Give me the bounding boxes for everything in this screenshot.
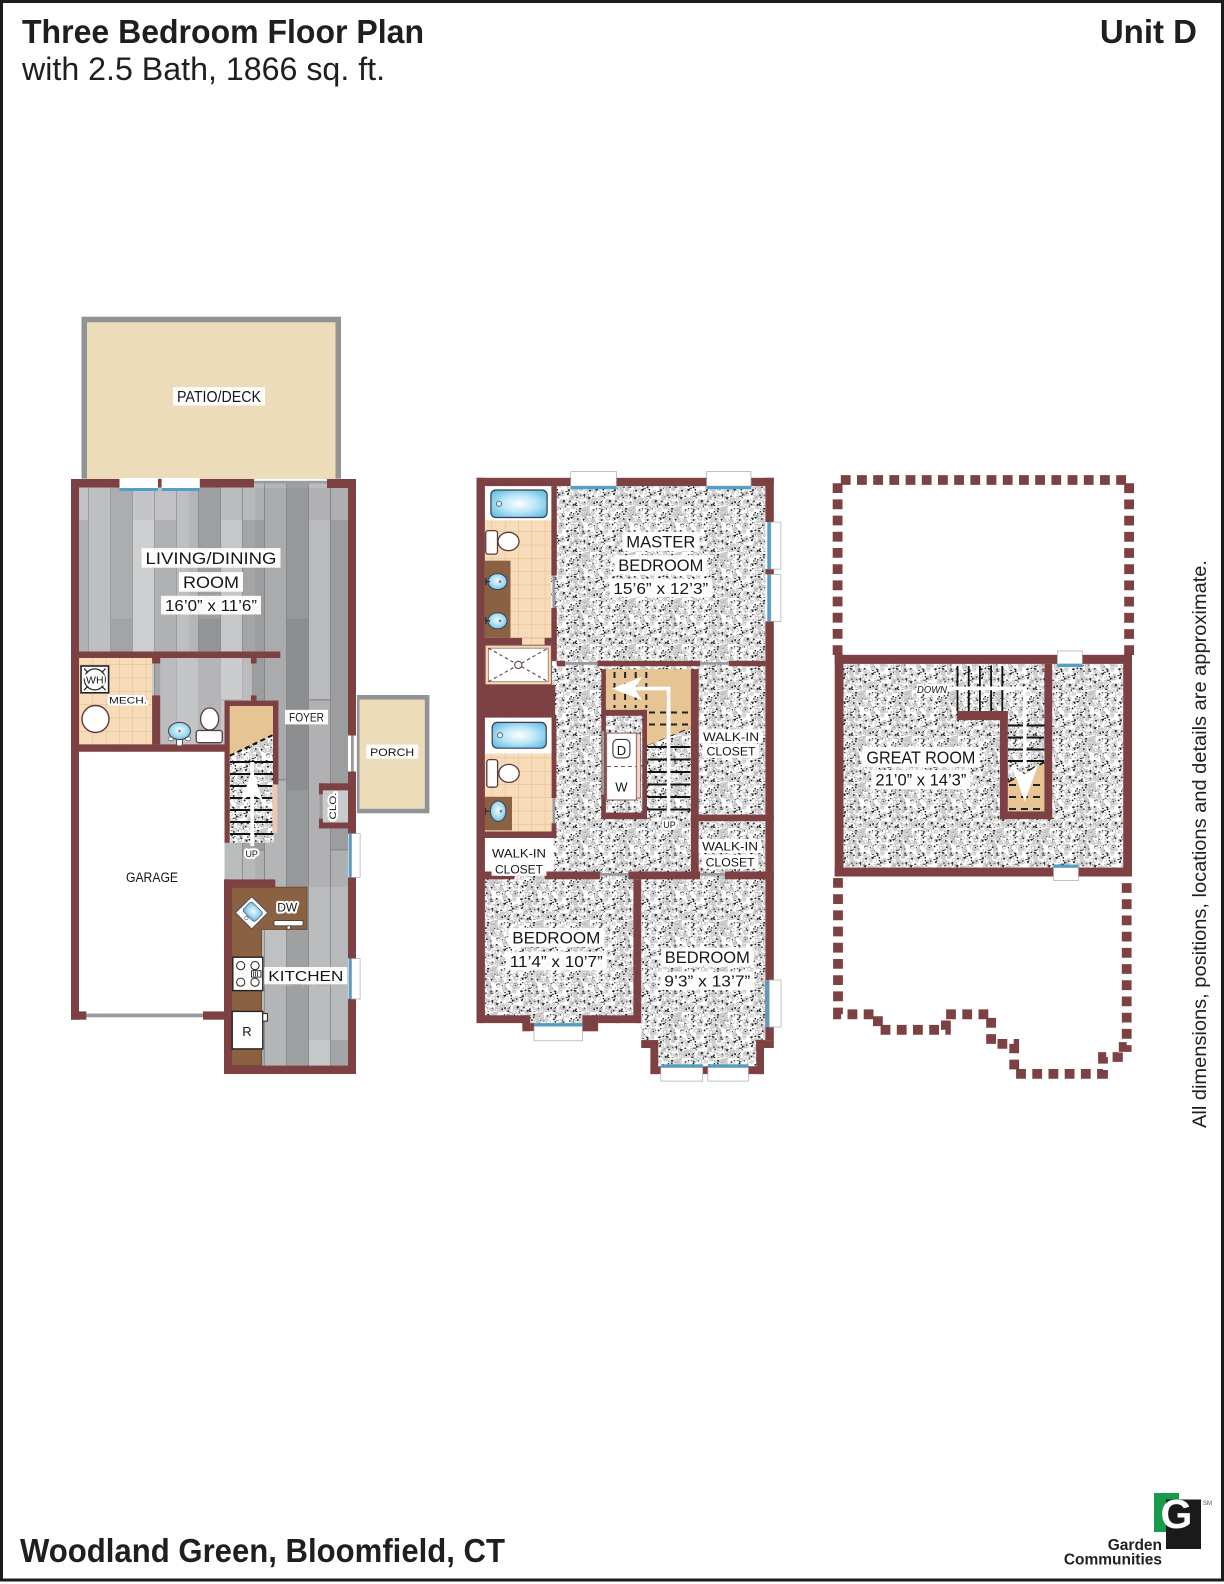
svg-text:R: R <box>242 1024 251 1039</box>
svg-text:CLOSET: CLOSET <box>495 862 544 876</box>
svg-text:BEDROOM: BEDROOM <box>512 929 600 947</box>
svg-text:16’0” x 11’6”: 16’0” x 11’6” <box>165 598 257 615</box>
svg-text:CLOSET: CLOSET <box>707 745 757 759</box>
svg-text:GARAGE: GARAGE <box>126 870 178 885</box>
svg-text:Unit D: Unit D <box>1100 13 1197 50</box>
svg-text:WALK-IN: WALK-IN <box>703 730 759 744</box>
svg-text:WH: WH <box>86 675 104 687</box>
svg-text:ROOM: ROOM <box>183 573 239 592</box>
svg-text:BEDROOM: BEDROOM <box>665 949 750 967</box>
svg-text:with 2.5 Bath, 1866 sq. ft.: with 2.5 Bath, 1866 sq. ft. <box>21 51 385 87</box>
svg-text:WALK-IN: WALK-IN <box>492 847 546 861</box>
svg-text:MASTER: MASTER <box>626 533 695 552</box>
svg-text:MECH.: MECH. <box>109 696 147 707</box>
svg-text:D: D <box>617 743 626 758</box>
svg-text:Communities: Communities <box>1064 1552 1162 1569</box>
svg-text:CLOSET: CLOSET <box>706 855 756 869</box>
svg-text:15’6” x 12’3”: 15’6” x 12’3” <box>613 581 708 598</box>
svg-text:21’0” x 14’3”: 21’0” x 14’3” <box>875 772 966 790</box>
svg-text:LIVING/DINING: LIVING/DINING <box>146 549 277 568</box>
svg-text:KITCHEN: KITCHEN <box>268 969 343 985</box>
svg-text:CLO.: CLO. <box>328 793 339 820</box>
svg-text:DW: DW <box>277 901 298 915</box>
svg-text:FOYER: FOYER <box>289 713 324 725</box>
svg-text:BEDROOM: BEDROOM <box>618 556 703 575</box>
svg-text:PORCH: PORCH <box>370 747 414 759</box>
svg-text:GREAT ROOM: GREAT ROOM <box>866 747 975 767</box>
svg-text:Three Bedroom Floor Plan: Three Bedroom Floor Plan <box>22 13 424 50</box>
svg-text:WALK-IN: WALK-IN <box>702 840 758 854</box>
svg-text:SM: SM <box>1203 1501 1212 1507</box>
svg-text:DOWN: DOWN <box>917 685 948 696</box>
svg-text:11’4” x 10’7”: 11’4” x 10’7” <box>510 954 603 971</box>
svg-text:All dimensions, positions, loc: All dimensions, positions, locations and… <box>1189 560 1211 1128</box>
svg-text:G: G <box>1161 1491 1193 1537</box>
svg-text:Woodland Green, Bloomfield, CT: Woodland Green, Bloomfield, CT <box>20 1532 505 1569</box>
svg-text:UP: UP <box>663 820 676 830</box>
svg-text:W: W <box>615 780 628 795</box>
svg-text:UP: UP <box>245 849 258 859</box>
svg-text:9’3” x 13’7”: 9’3” x 13’7” <box>664 974 750 991</box>
svg-text:PATIO/DECK: PATIO/DECK <box>177 389 262 406</box>
